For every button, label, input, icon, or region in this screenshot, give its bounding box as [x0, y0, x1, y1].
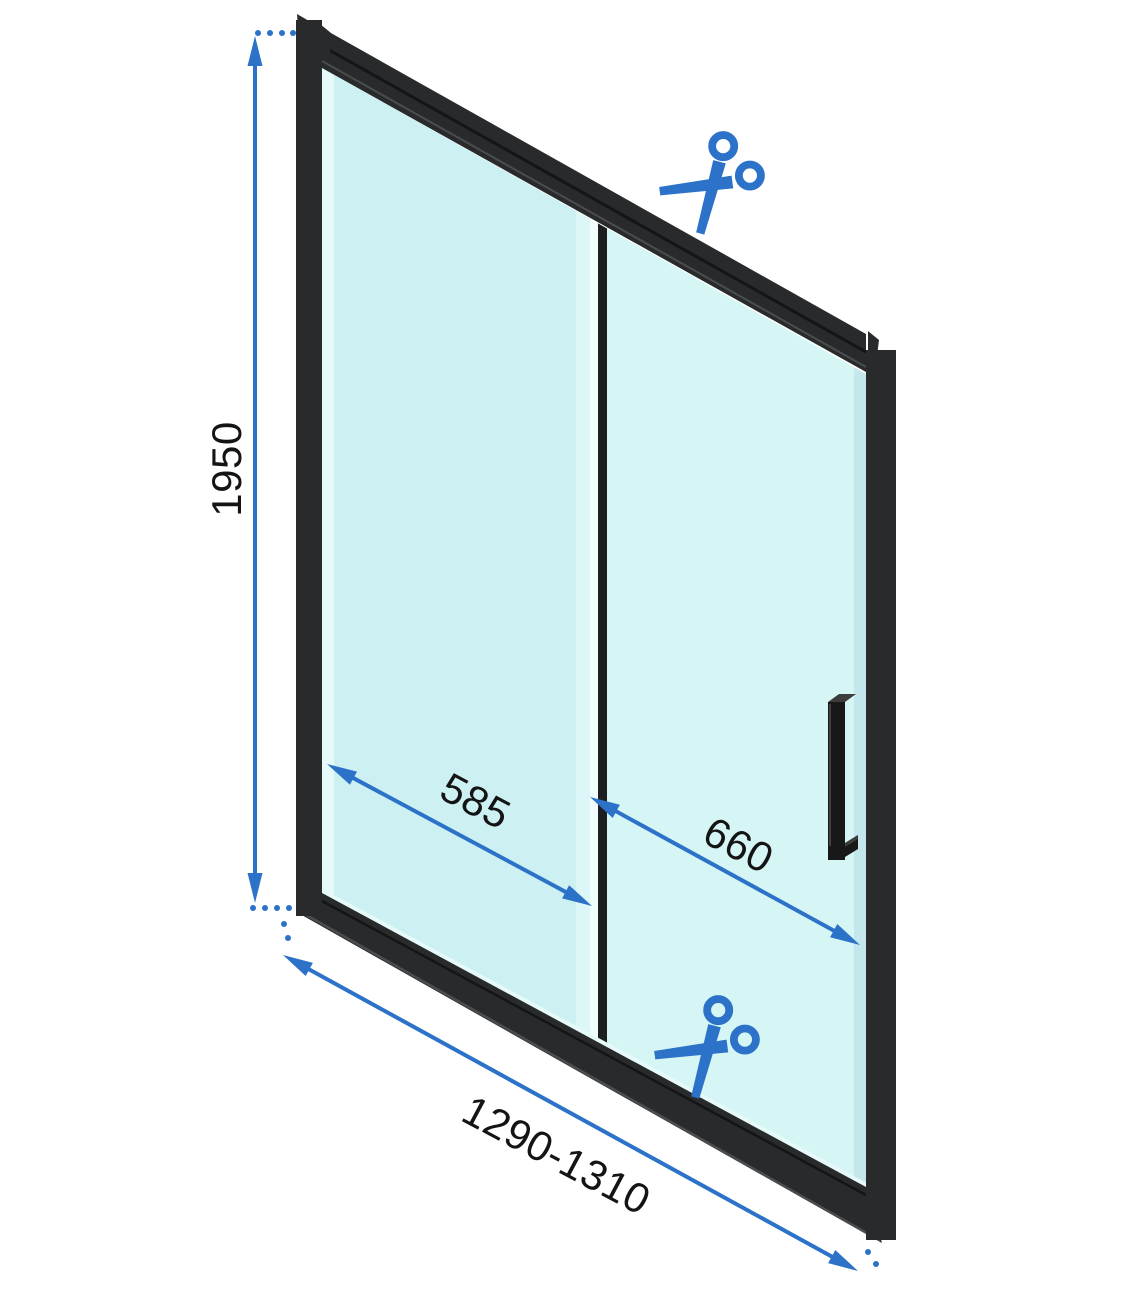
scissors-blade-steep [696, 160, 726, 235]
right-profile-mount-tab [868, 331, 879, 356]
height-extension-dots-top [255, 30, 296, 36]
left-profile-mount-tab [297, 14, 312, 44]
scissors-blade-flat [659, 176, 733, 196]
overall-width-extension-dots [865, 1249, 879, 1267]
scissors-icon-top [659, 135, 761, 235]
scissors-ring-right [739, 165, 761, 187]
overall-width-arrowhead-right [828, 1250, 858, 1271]
right-wall-profile [866, 350, 896, 1240]
panel-divider-edge [598, 223, 607, 1050]
fixed-panel-left-edge-highlight [322, 68, 334, 903]
overall-width-arrowhead-left [283, 955, 313, 976]
shower-door-technical-diagram: 1950 585 660 1290-1310 [0, 0, 1130, 1301]
fixed-panel-right-edge-strip [576, 211, 590, 1041]
sliding-panel-right-edge-shade [854, 368, 866, 1190]
dimension-height [248, 30, 297, 941]
handle-bottom-foot [828, 846, 845, 860]
fixed-panel-glass [322, 68, 600, 1046]
height-arrowhead-bottom [248, 873, 263, 903]
left-wall-profile [296, 20, 322, 916]
diagram-canvas: 1950 585 660 1290-1310 [0, 0, 1130, 1301]
fixed-panel-right-edge-bright [590, 219, 598, 1045]
height-extension-dots-bottom [250, 905, 292, 941]
height-arrowhead-top [248, 36, 263, 66]
scissors-ring-upper [712, 135, 734, 157]
height-dimension-label: 1950 [203, 421, 250, 516]
